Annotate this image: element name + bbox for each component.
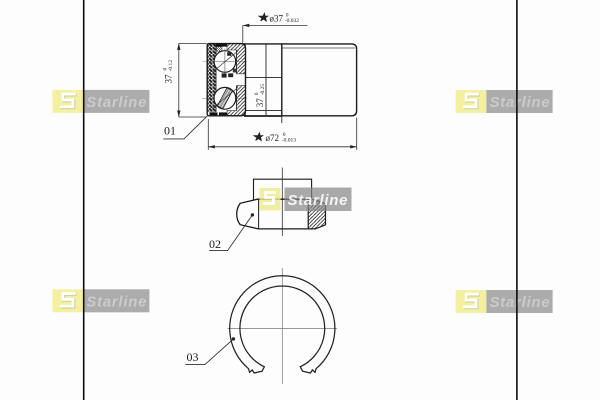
svg-text:-0.032: -0.032 bbox=[285, 18, 299, 24]
svg-text:Starline: Starline bbox=[86, 95, 146, 111]
svg-text:Starline: Starline bbox=[288, 192, 348, 209]
svg-text:ø72: ø72 bbox=[266, 133, 280, 143]
svg-text:37: 37 bbox=[255, 98, 265, 108]
svg-text:-0.25: -0.25 bbox=[260, 84, 266, 96]
svg-text:Starline: Starline bbox=[86, 294, 146, 310]
svg-text:-0.013: -0.013 bbox=[282, 138, 296, 144]
svg-text:Starline: Starline bbox=[490, 95, 550, 111]
svg-text:Starline: Starline bbox=[490, 295, 550, 311]
svg-text:01: 01 bbox=[164, 124, 176, 138]
svg-text:02: 02 bbox=[209, 237, 221, 251]
svg-text:ø37: ø37 bbox=[270, 14, 284, 24]
svg-text:-0.12: -0.12 bbox=[168, 60, 174, 72]
svg-text:03: 03 bbox=[187, 350, 199, 364]
svg-text:37: 37 bbox=[164, 74, 174, 84]
